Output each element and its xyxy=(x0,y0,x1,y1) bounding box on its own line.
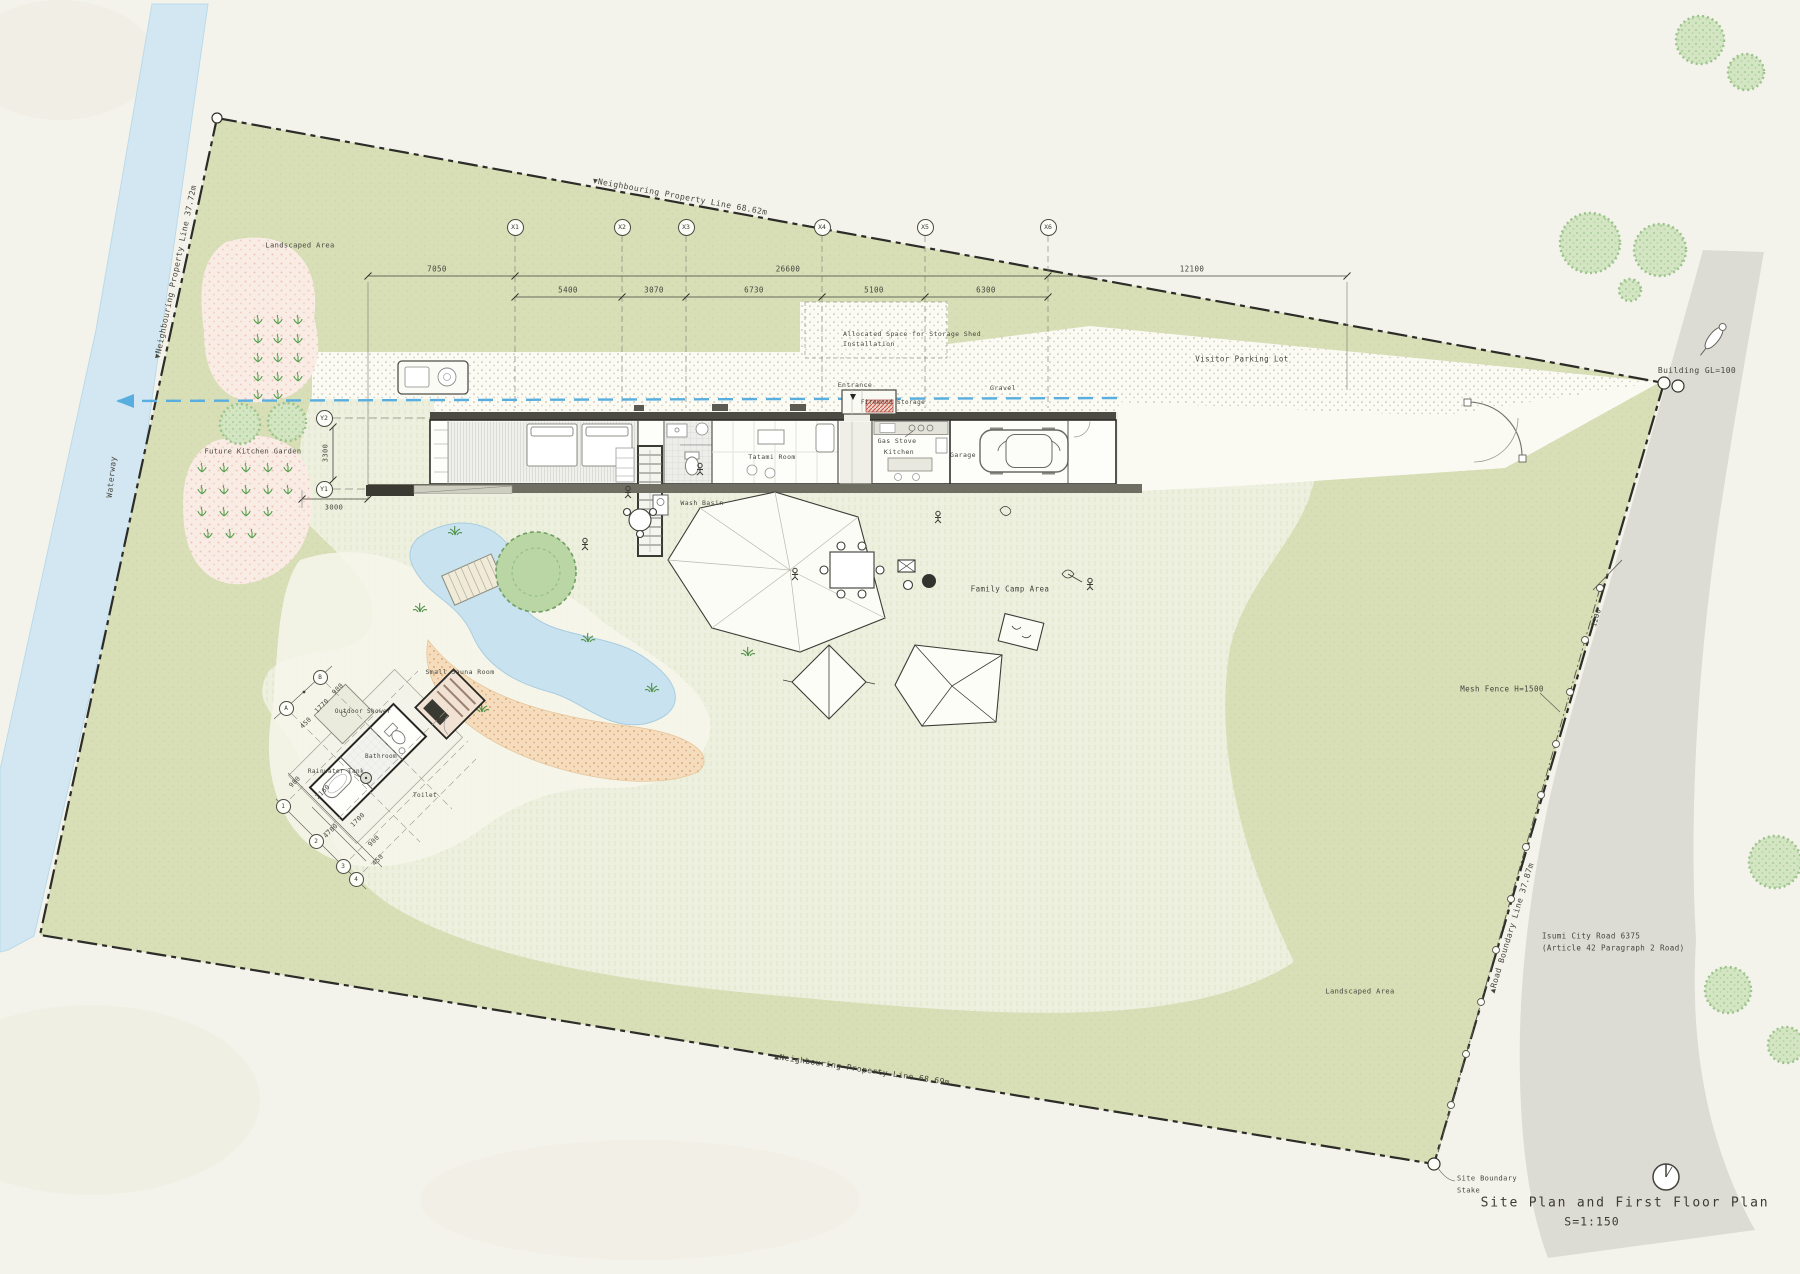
mesh-fence-label: Mesh Fence H=1500 xyxy=(1460,685,1544,693)
dim-5100: 5100 xyxy=(864,286,884,294)
toilet-fixture xyxy=(686,457,699,475)
garage-label: Garage xyxy=(950,452,976,459)
grid-bubble-4: 4 xyxy=(349,872,364,887)
dim-5400: 5400 xyxy=(558,286,578,294)
entrance-label: Entrance xyxy=(838,382,873,389)
landscaped-area-top-label: Landscaped Area xyxy=(265,243,334,250)
fridge xyxy=(936,438,947,453)
grid-bubble-x3: X3 xyxy=(678,219,695,236)
dim-3300: 3300 xyxy=(323,444,330,462)
dim-26600: 26600 xyxy=(776,265,801,273)
entrance-floor xyxy=(840,422,872,484)
dim-3070: 3070 xyxy=(644,286,664,294)
car xyxy=(980,428,1068,475)
outdoor-shower-label: Outdoor Shower xyxy=(335,709,391,715)
road-name-line1: Isumi City Road 6375 xyxy=(1542,932,1640,940)
site-plan-drawing xyxy=(0,0,1800,1274)
wash-basin-label: Wash Basin xyxy=(680,500,723,507)
gravel-label: Gravel xyxy=(990,385,1016,392)
gas-stove-label: Gas Stove xyxy=(878,438,917,445)
grid-bubble-2: 2 xyxy=(309,834,324,849)
grid-bubble-3: 3 xyxy=(336,859,351,874)
grid-bubble-x5: X5 xyxy=(917,219,934,236)
cabinet xyxy=(616,448,634,482)
grid-bubble-a: A xyxy=(279,701,294,716)
grid-bubble-1: 1 xyxy=(276,799,291,814)
kitchen-label: Kitchen xyxy=(884,449,914,456)
large-tree xyxy=(496,532,576,612)
drawing-title: Site Plan and First Floor Plan xyxy=(1481,1197,1770,1210)
camp-table xyxy=(830,552,874,588)
stake-label-line2: Stake xyxy=(1457,1188,1480,1195)
sofa xyxy=(816,424,834,452)
dim-6730: 6730 xyxy=(744,286,764,294)
road-name-line2: (Article 42 Paragraph 2 Road) xyxy=(1542,944,1685,952)
building-gl-label: Building GL=100 xyxy=(1658,367,1736,375)
kitchen-garden-label: Future Kitchen Garden xyxy=(205,449,302,456)
bathroom-label: Bathroom xyxy=(365,754,397,760)
stake-label-line1: Site Boundary xyxy=(1457,1176,1517,1183)
dim-3000: 3000 xyxy=(325,505,343,512)
north-arrow xyxy=(1653,1164,1679,1190)
grid-bubble-x1: X1 xyxy=(507,219,524,236)
small-sauna-label: Small Sauna Room xyxy=(425,669,494,676)
grid-bubble-x4: X4 xyxy=(814,219,831,236)
grid-bubble-y2: Y2 xyxy=(316,410,333,427)
round-table xyxy=(629,509,651,531)
grid-bubble-y1: Y1 xyxy=(316,481,333,498)
grid-bubble-b: B xyxy=(313,670,328,685)
garden-tree xyxy=(268,403,306,441)
toilet-label: Toilet xyxy=(413,793,437,799)
storage-shed-label-line2: Installation xyxy=(843,341,895,348)
washing-machine xyxy=(696,423,708,435)
landscaped-area-bottom-label: Landscaped Area xyxy=(1325,989,1394,996)
washroom-sink xyxy=(667,424,687,437)
kitchen-island xyxy=(888,458,932,471)
kitchen-sink xyxy=(880,424,895,433)
grid-bubble-x6: X6 xyxy=(1040,219,1057,236)
family-camp-label: Family Camp Area xyxy=(971,585,1050,593)
firewood-label: Firewood Storage xyxy=(861,400,925,406)
outdoor-bbq-counter xyxy=(398,361,468,394)
storage-shed-label-line1: Allocated Space for Storage Shed xyxy=(843,331,981,338)
low-table xyxy=(758,430,784,444)
site-plan-sheet: ▼Neighbouring Property Line 68.62m ▼Neig… xyxy=(0,0,1800,1274)
tatami-room-label: Tatami Room xyxy=(748,454,795,461)
grid-bubble-x2: X2 xyxy=(614,219,631,236)
visitor-parking-label: Visitor Parking Lot xyxy=(1195,355,1288,363)
garden-tree xyxy=(220,404,260,444)
drawing-scale: S=1:150 xyxy=(1564,1216,1619,1228)
dim-7050: 7050 xyxy=(427,265,447,273)
dim-6300: 6300 xyxy=(976,286,996,294)
camp-pot xyxy=(922,574,936,588)
dim-12100: 12100 xyxy=(1180,265,1205,273)
rainwater-tank-label: Rainwater Tank xyxy=(308,769,364,775)
